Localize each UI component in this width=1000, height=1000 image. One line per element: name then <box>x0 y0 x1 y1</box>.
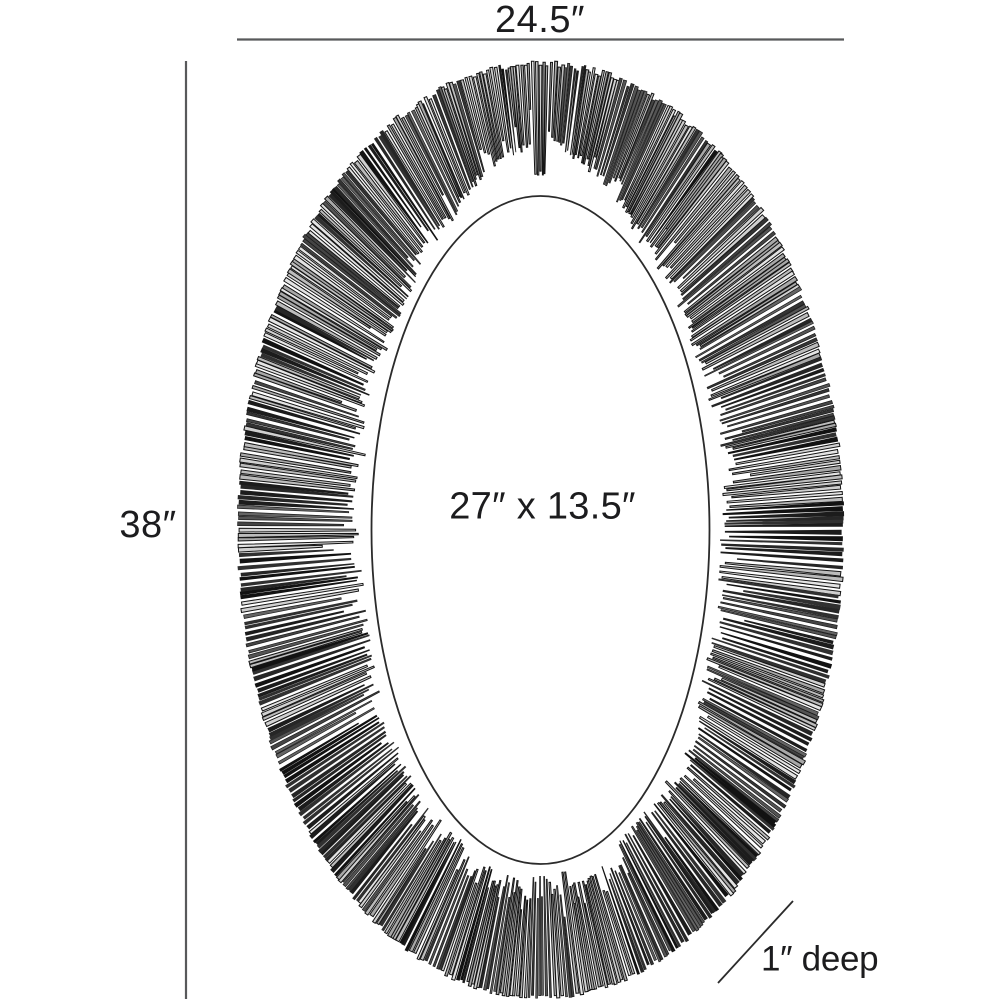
svg-text:1″ deep: 1″ deep <box>761 940 878 979</box>
svg-text:38″: 38″ <box>119 504 176 546</box>
svg-text:24.5″: 24.5″ <box>495 0 585 41</box>
svg-text:27″ x 13.5″: 27″ x 13.5″ <box>449 486 636 528</box>
